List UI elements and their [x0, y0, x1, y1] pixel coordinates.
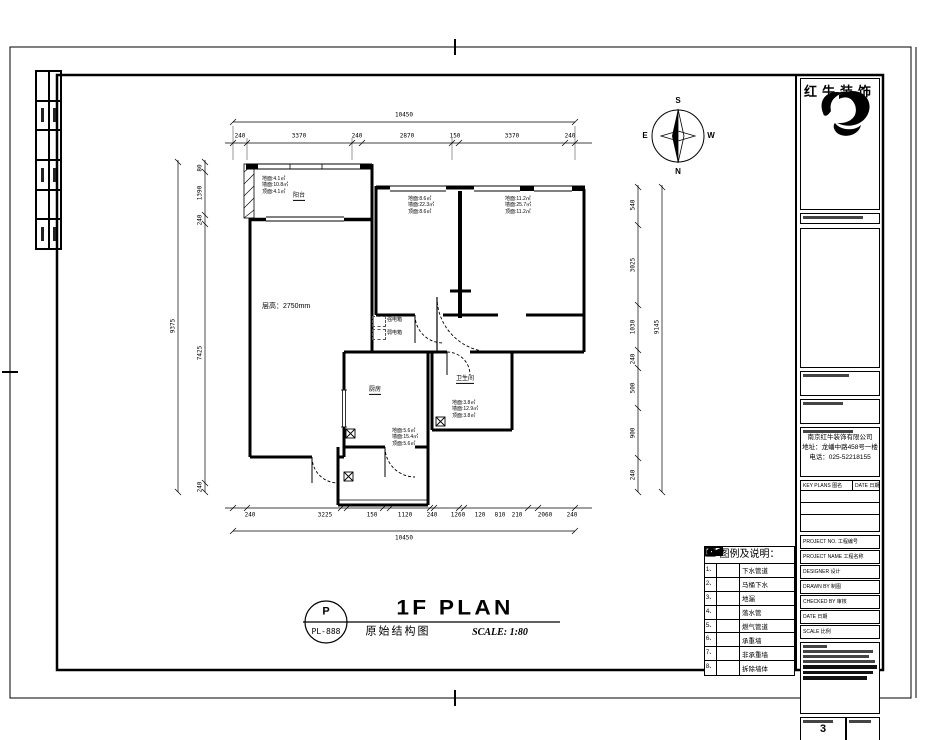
room-annotation-balcony: 地面:4.1㎡ 墙面:10.8㎡ 顶面:4.1㎡ [262, 176, 288, 195]
company-phone: 电话：025-52218155 [801, 453, 879, 463]
drawing-no-cell: 3 [800, 717, 846, 740]
weak-power-label: 弱电箱 [387, 330, 402, 337]
drawing-name-cn: 原始结构图 [366, 625, 431, 638]
hongniu-bull-logo-icon [801, 79, 879, 179]
legend-row: 5、 燃气管道 [705, 620, 794, 634]
dim-right-seg: 500 [629, 383, 636, 394]
legend-row: 4、 落水管 [705, 606, 794, 620]
room-label-kitchen: 厨房 [369, 387, 381, 395]
stamp-letter: P [322, 605, 329, 618]
dim-right-seg: 540 [629, 200, 636, 211]
titleblock-row-scale: SCALE 比例 [800, 625, 880, 639]
legend-row-label: 地漏 [740, 593, 794, 603]
titleblock-row-drawn-by: DRAWN BY 制图 [800, 580, 880, 594]
binding-mark [41, 168, 44, 182]
legend-row: 2、 马桶下水 [705, 578, 794, 592]
legend-row-label: 落水管 [740, 607, 794, 617]
dim-top-seg: 3370 [505, 132, 519, 139]
compass-east-label: E [642, 131, 647, 141]
dim-bottom-seg: 3225 [318, 511, 332, 518]
compass-south-label: S [675, 96, 680, 106]
compass-west-label: W [707, 131, 715, 141]
room-label-bath: 卫生间 [456, 376, 474, 384]
demolish-wall-icon [717, 661, 740, 675]
legend-row-num: 8、 [705, 661, 717, 675]
toilet-drain-icon [717, 578, 740, 591]
dim-right-seg: 240 [629, 354, 636, 365]
dim-top-seg: 2870 [400, 132, 414, 139]
room-label-balcony: 阳台 [293, 193, 305, 201]
dim-bottom-total: 10450 [395, 534, 413, 541]
dim-top-total: 10450 [395, 111, 413, 118]
legend-row: 7、 非承重墙 [705, 647, 794, 661]
titleblock-row-designer: DESIGNER 设计 [800, 565, 880, 579]
dim-right-total: 9145 [653, 320, 660, 334]
dim-bottom-seg: 120 [475, 511, 486, 518]
drawing-sheet: S E W N 10450 240 3370 240 2870 150 3370… [0, 0, 925, 740]
legend-row-num: 7、 [705, 647, 717, 660]
stamp-code: PL-888 [312, 627, 341, 637]
dim-top-seg: 240 [352, 132, 363, 139]
non-bearing-wall-icon [717, 647, 740, 660]
legend-row-num: 1、 [705, 564, 717, 577]
approval-box-1 [800, 371, 880, 396]
dim-bottom-seg: 150 [367, 511, 378, 518]
legend-row: 1、 下水管道 [705, 564, 794, 578]
binding-mark [53, 227, 56, 241]
keyplan-table: KEY PLANS 图名 DATE 日期 [800, 480, 880, 532]
dim-right-seg: 240 [629, 470, 636, 481]
drawing-no-value: 3 [801, 723, 845, 735]
weak-power-box [372, 329, 386, 340]
blank-box [800, 228, 880, 368]
dim-left-seg: 240 [196, 215, 203, 226]
version-cell [846, 717, 880, 740]
load-bearing-wall-icon [717, 633, 740, 646]
legend-row: 6、 承重墙 [705, 633, 794, 647]
titleblock-row-date: DATE 日期 [800, 610, 880, 624]
strong-power-label: 强电箱 [387, 317, 402, 324]
binding-mark-strip [35, 70, 62, 250]
legend-table: 图例及说明： 1、 下水管道 2、 马桶下水 3、 地漏 [704, 546, 795, 676]
room-annotation-bath: 地面:3.8㎡ 墙面:12.9㎡ 顶面:3.8㎡ [452, 400, 478, 419]
title-block: 红牛装饰 南京红牛装饰有限公司 地址：龙蟠中路458号一楼 电话：025-522… [795, 75, 883, 670]
dim-left-seg: 80 [196, 164, 203, 171]
dim-right-seg: 900 [629, 428, 636, 439]
dim-left-seg: 240 [196, 482, 203, 493]
keyplan-header-date: DATE 日期 [853, 481, 879, 490]
sheet-scale: SCALE: 1:80 [472, 627, 528, 639]
legend-row-num: 6、 [705, 633, 717, 646]
titleblock-row-project-name: PROJECT NAME 工程名称 [800, 550, 880, 564]
dim-bottom-seg: 1120 [398, 511, 412, 518]
dim-bottom-seg: 2060 [538, 511, 552, 518]
dim-left-total: 9375 [169, 319, 176, 333]
dim-top-seg: 3370 [292, 132, 306, 139]
legend-row-num: 2、 [705, 578, 717, 591]
binding-mark [41, 227, 44, 241]
company-address: 地址：龙蟠中路458号一楼 [801, 443, 879, 453]
dim-top-seg: 240 [565, 132, 576, 139]
compass-icon [652, 109, 704, 163]
compass-north-label: N [675, 167, 681, 177]
binding-mark [41, 108, 44, 122]
legend-row-label: 拆除墙体 [740, 663, 794, 673]
company-info-box: 南京红牛装饰有限公司 地址：龙蟠中路458号一楼 电话：025-52218155 [800, 427, 880, 477]
dim-bottom-seg: 240 [567, 511, 578, 518]
strong-power-box [372, 316, 386, 327]
dim-bottom-seg: 1260 [451, 511, 465, 518]
legend-row-num: 3、 [705, 592, 717, 605]
legend-row-label: 承重墙 [740, 635, 794, 645]
dim-bottom-seg: 210 [512, 511, 523, 518]
legend-row-num: 4、 [705, 606, 717, 619]
legend-row-label: 下水管道 [740, 565, 794, 575]
dim-bottom-seg: 240 [427, 511, 438, 518]
legend-row-num: 5、 [705, 620, 717, 633]
logo-box: 红牛装饰 [800, 78, 880, 210]
dim-left-seg: 1390 [196, 186, 203, 200]
room-annotation-bedroom-a: 地面:8.6㎡ 墙面:22.3㎡ 顶面:8.6㎡ [408, 196, 434, 215]
approval-box-2 [800, 399, 880, 424]
legend-row: 8、 拆除墙体 [705, 661, 794, 675]
keyplan-header-name: KEY PLANS 图名 [801, 481, 853, 490]
dim-right-seg: 1030 [629, 320, 636, 334]
legend-row-label: 马桶下水 [740, 579, 794, 589]
binding-mark [53, 108, 56, 122]
company-name: 南京红牛装饰有限公司 [801, 433, 879, 443]
dim-top-seg: 240 [235, 132, 246, 139]
notes-box [800, 642, 880, 714]
legend-row-label: 非承重墙 [740, 649, 794, 659]
floor-drain-icon [717, 592, 740, 605]
gas-pipe-icon [717, 620, 740, 633]
titleblock-row-project-no: PROJECT NO. 工程编号 [800, 535, 880, 549]
binding-mark [53, 168, 56, 182]
ceiling-height-note: 层高：2750mm [262, 303, 310, 311]
dim-left-seg: 7425 [196, 346, 203, 360]
dim-bottom-seg: 240 [245, 511, 256, 518]
dim-top-seg: 150 [450, 132, 461, 139]
drain-pipe-icon [717, 564, 740, 577]
dim-bottom-seg: 810 [495, 511, 506, 518]
dim-right-seg: 3025 [629, 258, 636, 272]
room-annotation-bedroom-b: 地面:11.2㎡ 墙面:25.7㎡ 顶面:11.2㎡ [505, 196, 531, 215]
logo-subtitle-box [800, 213, 880, 224]
legend-row-label: 燃气管道 [740, 621, 794, 631]
legend-row: 3、 地漏 [705, 592, 794, 606]
downpipe-icon [717, 606, 740, 619]
room-annotation-kitchen: 地面:5.6㎡ 墙面:15.4㎡ 顶面:5.6㎡ [392, 428, 418, 447]
titleblock-row-checked-by: CHECKED BY 审核 [800, 595, 880, 609]
sheet-title: 1F PLAN [396, 595, 513, 620]
